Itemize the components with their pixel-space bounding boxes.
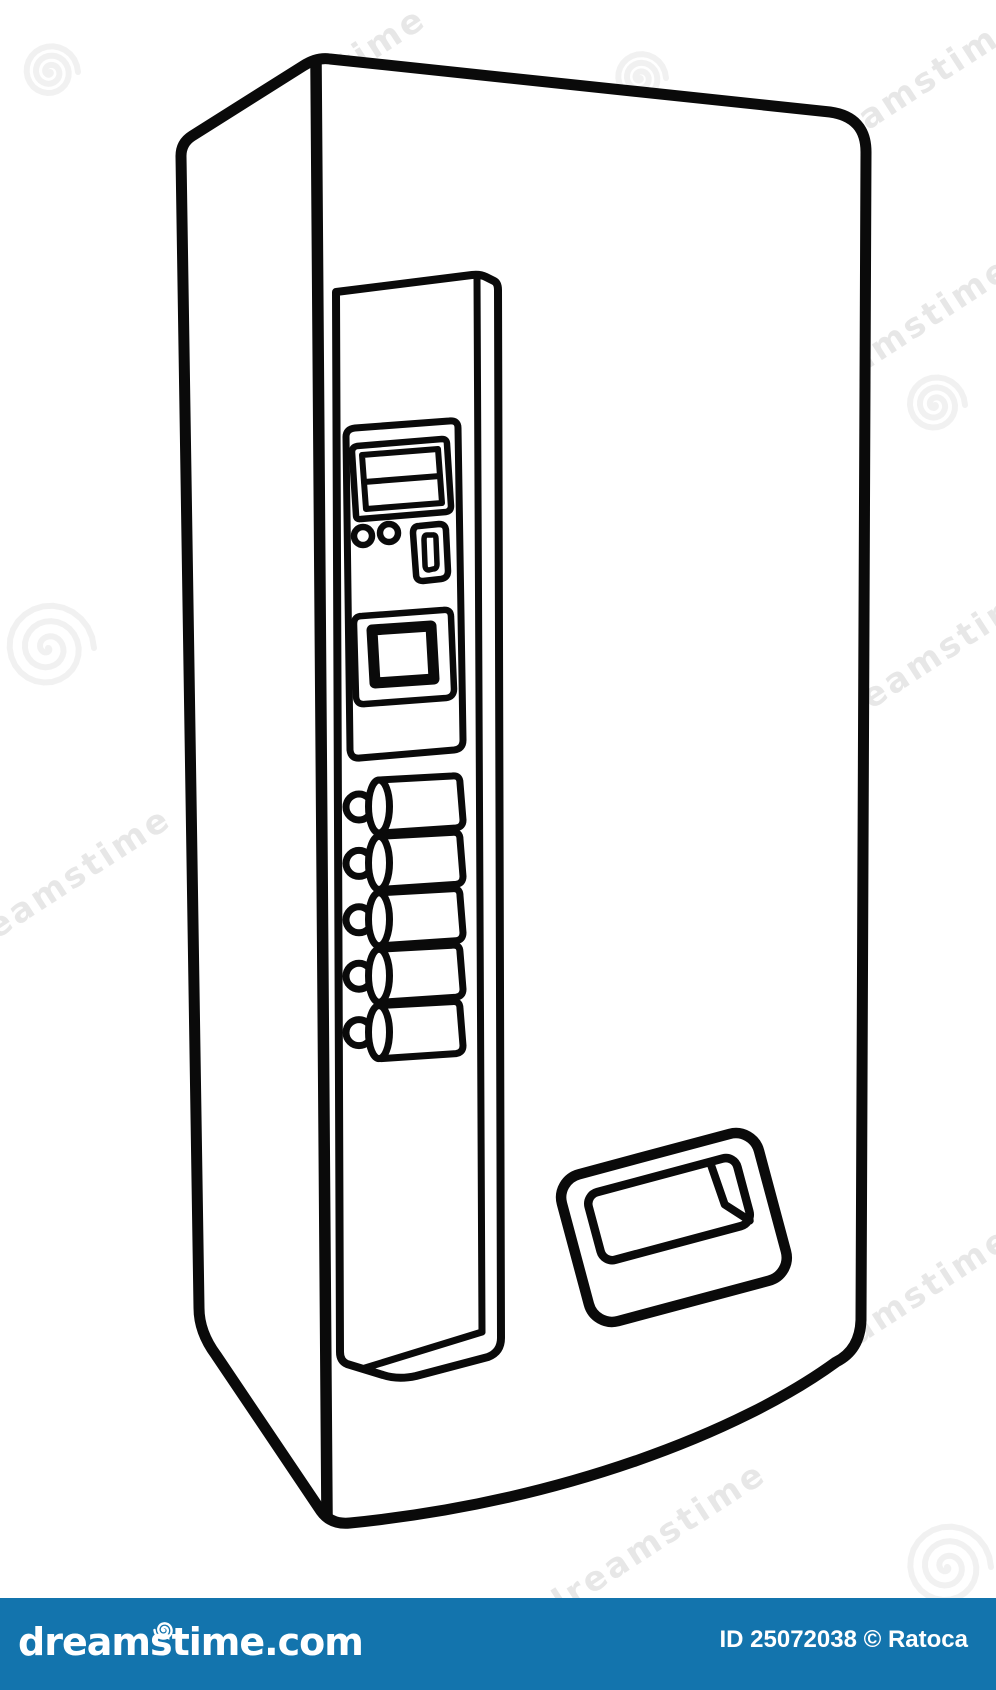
coin-return-button-2 [380,524,398,542]
watermark-text: dreamstime [0,798,179,973]
selection-button-cap [369,780,390,833]
selection-button-cap [369,836,390,889]
image-credit: ID 25072038 © Ratoca [720,1626,969,1654]
logo-spiral-icon [150,1616,178,1644]
bill-acceptor-opening [372,626,434,683]
coin-return-button-1 [354,527,372,545]
watermark-spiral-icon [910,378,965,428]
watermark-spiral-icon [910,1527,991,1600]
stock-image-canvas: dreamstimedreamstimedreamstimedreamstime… [0,0,996,1690]
selection-button-cap [369,893,390,946]
watermark-spiral-icon [10,606,94,683]
vending-machine-illustration: dreamstimedreamstimedreamstimedreamstime… [0,0,996,1690]
watermark-footer-bar: dreamstime.com ID 25072038 © Ratoca [0,1598,996,1690]
selection-button-cap [369,1006,390,1059]
selection-button-cap [369,949,390,1002]
dreamstime-logo: dreamstime.com [18,1620,363,1664]
watermark-spiral-icon [27,46,78,93]
control-panel-bevel-edge [477,277,482,1332]
machine-body-outline [181,59,866,1524]
